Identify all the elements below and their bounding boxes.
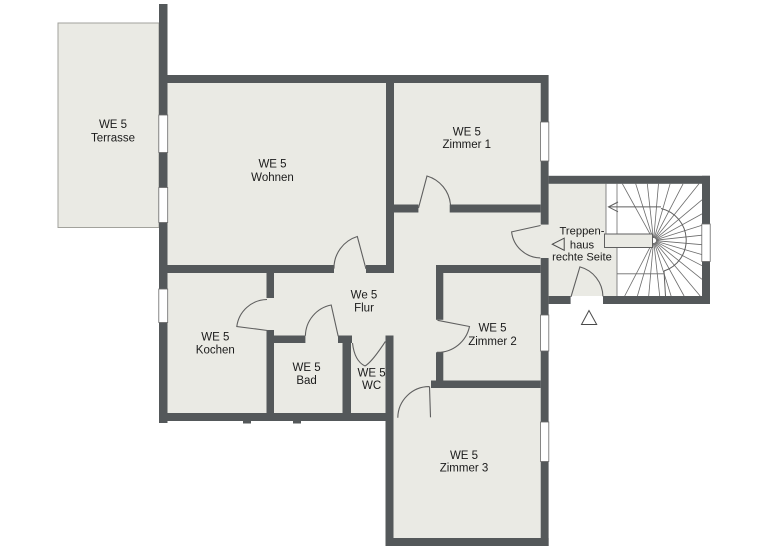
svg-text:haus: haus xyxy=(570,239,595,251)
svg-text:WE 5: WE 5 xyxy=(478,322,506,334)
svg-text:WE 5: WE 5 xyxy=(453,127,481,139)
svg-text:WE 5: WE 5 xyxy=(201,332,229,344)
svg-text:Flur: Flur xyxy=(354,303,374,315)
svg-text:WC: WC xyxy=(362,380,381,392)
svg-text:WE 5: WE 5 xyxy=(293,362,321,374)
svg-text:Treppen-: Treppen- xyxy=(560,226,605,238)
svg-text:Terrasse: Terrasse xyxy=(91,133,135,145)
svg-text:WE 5: WE 5 xyxy=(358,367,386,379)
svg-text:WE 5: WE 5 xyxy=(99,119,127,131)
svg-text:WE 5: WE 5 xyxy=(258,158,286,170)
svg-text:rechte Seite: rechte Seite xyxy=(552,252,612,264)
svg-text:Zimmer 1: Zimmer 1 xyxy=(443,139,492,151)
svg-text:Zimmer 2: Zimmer 2 xyxy=(468,336,517,348)
svg-text:Kochen: Kochen xyxy=(196,345,235,357)
svg-text:Wohnen: Wohnen xyxy=(251,172,294,184)
svg-text:We 5: We 5 xyxy=(351,290,378,302)
svg-text:Bad: Bad xyxy=(296,375,316,387)
svg-text:WE 5: WE 5 xyxy=(450,450,478,462)
svg-text:Zimmer 3: Zimmer 3 xyxy=(440,463,489,475)
